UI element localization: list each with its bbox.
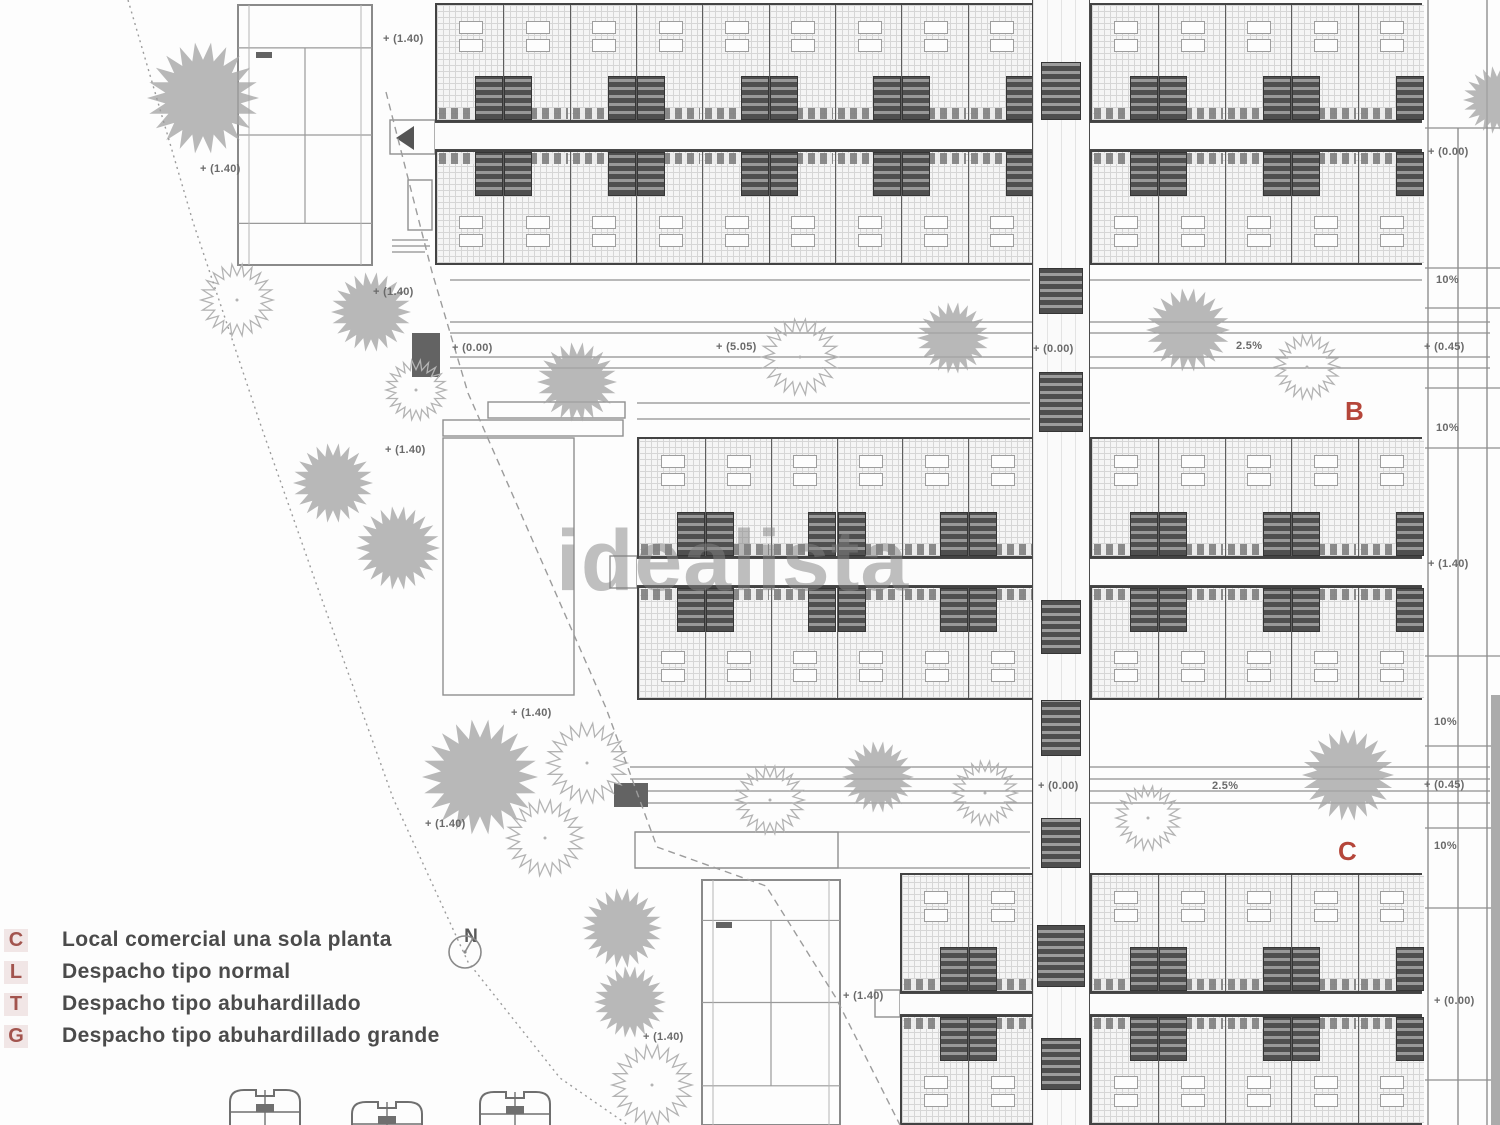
legend-key-c: C bbox=[4, 929, 28, 952]
legend-row-despacho-abuhardillado-grande: G Despacho tipo abuhardillado grande bbox=[4, 1020, 440, 1052]
legend-label-despacho-abuhardillado-grande: Despacho tipo abuhardillado grande bbox=[62, 1024, 440, 1048]
site-plan: + (1.40)+ (1.40)+ (1.40)+ (0.00)+ (1.40)… bbox=[0, 0, 1500, 1125]
legend-label-despacho-abuhardillado: Despacho tipo abuhardillado bbox=[62, 992, 361, 1016]
elevation-label: + (0.45) bbox=[1424, 779, 1465, 791]
elevation-label: + (0.00) bbox=[1038, 780, 1079, 792]
legend-row-despacho-normal: L Despacho tipo normal bbox=[4, 956, 440, 988]
elevation-label: + (1.40) bbox=[425, 818, 466, 830]
legend-key-g: G bbox=[4, 1025, 28, 1048]
legend-row-despacho-abuhardillado: T Despacho tipo abuhardillado bbox=[4, 988, 440, 1020]
legend-key-l: L bbox=[4, 961, 28, 984]
block-letter-label: C bbox=[1338, 836, 1357, 867]
elevation-label: 10% bbox=[1434, 716, 1457, 728]
elevation-label: + (1.40) bbox=[373, 286, 414, 298]
legend-label-despacho-normal: Despacho tipo normal bbox=[62, 960, 291, 984]
elevation-label: + (1.40) bbox=[843, 990, 884, 1002]
elevation-label: 10% bbox=[1436, 422, 1459, 434]
elevation-label: 2.5% bbox=[1212, 780, 1238, 792]
elevation-label: + (1.40) bbox=[385, 444, 426, 456]
elevation-label: + (0.00) bbox=[1434, 995, 1475, 1007]
legend-label-local-comercial: Local comercial una sola planta bbox=[62, 928, 392, 952]
elevation-label: + (0.00) bbox=[452, 342, 493, 354]
elevation-label: + (1.40) bbox=[511, 707, 552, 719]
elevation-label: + (1.40) bbox=[200, 163, 241, 175]
north-indicator: N bbox=[438, 926, 490, 948]
elevation-label: + (1.40) bbox=[643, 1031, 684, 1043]
block-letter-label: B bbox=[1345, 396, 1364, 427]
legend: C Local comercial una sola planta L Desp… bbox=[4, 924, 440, 1052]
elevation-label: + (5.05) bbox=[716, 341, 757, 353]
legend-row-local-comercial: C Local comercial una sola planta bbox=[4, 924, 440, 956]
elevation-label: 10% bbox=[1436, 274, 1459, 286]
watermark: idealista bbox=[556, 512, 909, 611]
elevation-label: + (0.00) bbox=[1428, 146, 1469, 158]
elevation-label: 2.5% bbox=[1236, 340, 1262, 352]
north-label: N bbox=[452, 926, 490, 948]
elevation-label: + (1.40) bbox=[1428, 558, 1469, 570]
elevation-label: + (0.45) bbox=[1424, 341, 1465, 353]
elevation-label: + (1.40) bbox=[383, 33, 424, 45]
elevation-label: + (0.00) bbox=[1033, 343, 1074, 355]
elevation-label: 10% bbox=[1434, 840, 1457, 852]
legend-key-t: T bbox=[4, 993, 28, 1016]
